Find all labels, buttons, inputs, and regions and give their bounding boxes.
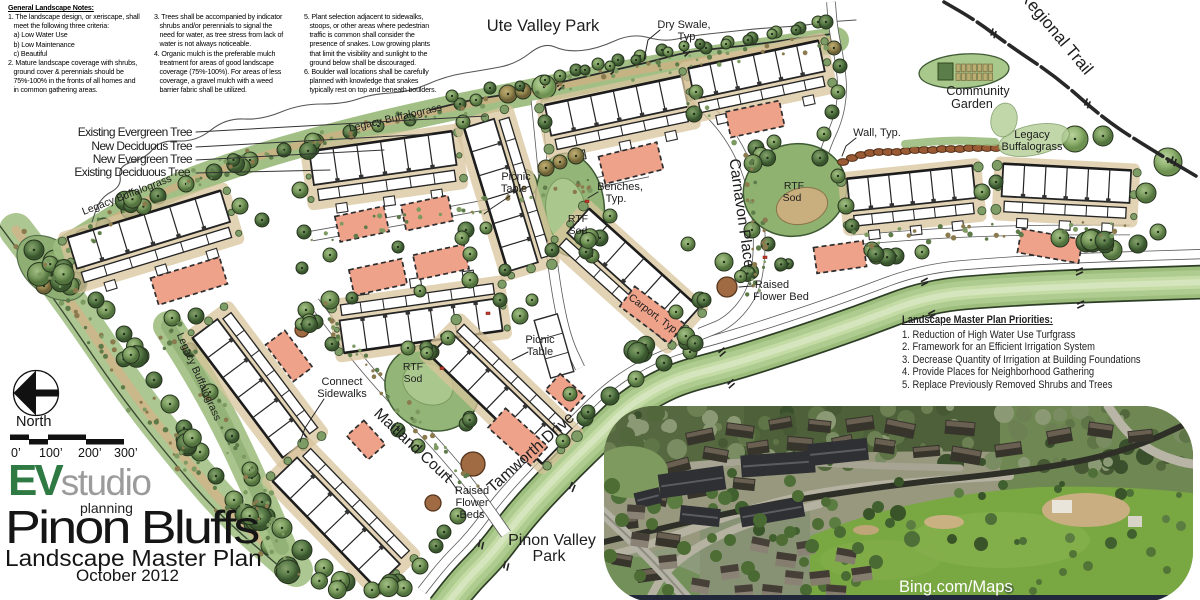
svg-text:Ute Valley Park: Ute Valley Park bbox=[487, 17, 600, 35]
svg-text:Sod: Sod bbox=[783, 192, 802, 204]
svg-text:RTF: RTF bbox=[784, 180, 804, 192]
svg-text:Legacy: Legacy bbox=[1014, 129, 1050, 141]
svg-text:Existing Evergreen Tree: Existing Evergreen Tree bbox=[78, 125, 193, 139]
svg-text:Bing.com/Maps: Bing.com/Maps bbox=[899, 578, 1013, 596]
svg-text:RTF: RTF bbox=[403, 361, 423, 373]
svg-text:Dry Swale,: Dry Swale, bbox=[657, 19, 710, 31]
svg-text:New Deciduous Tree: New Deciduous Tree bbox=[91, 139, 193, 153]
svg-text:Garden: Garden bbox=[951, 97, 993, 111]
svg-text:Connect: Connect bbox=[322, 376, 363, 388]
svg-text:Sidewalks: Sidewalks bbox=[317, 388, 367, 400]
svg-text:Typ.: Typ. bbox=[606, 193, 627, 205]
svg-text:Community: Community bbox=[946, 84, 1010, 98]
svg-text:RTF: RTF bbox=[568, 213, 588, 225]
svg-text:Sod: Sod bbox=[404, 373, 423, 385]
svg-text:Existing Deciduous Tree: Existing Deciduous Tree bbox=[74, 165, 191, 179]
svg-text:Park: Park bbox=[533, 548, 567, 565]
svg-text:Buffalograss: Buffalograss bbox=[1002, 141, 1063, 153]
svg-text:Flower Bed: Flower Bed bbox=[753, 291, 809, 303]
svg-text:Table: Table bbox=[527, 346, 553, 358]
svg-text:Sod: Sod bbox=[569, 225, 588, 237]
svg-text:Wall, Typ.: Wall, Typ. bbox=[853, 127, 901, 139]
svg-text:Beds: Beds bbox=[459, 509, 485, 521]
svg-text:Typ.: Typ. bbox=[678, 31, 699, 43]
svg-text:Picnic: Picnic bbox=[501, 171, 531, 183]
svg-text:Benches,: Benches, bbox=[597, 181, 643, 193]
svg-text:Picnic: Picnic bbox=[525, 334, 555, 346]
svg-text:New Evergreen Tree: New Evergreen Tree bbox=[93, 152, 193, 166]
svg-text:Pinon Valley: Pinon Valley bbox=[508, 532, 596, 549]
svg-text:Raised: Raised bbox=[755, 279, 789, 291]
svg-text:Raised: Raised bbox=[455, 485, 489, 497]
svg-text:Flower: Flower bbox=[455, 497, 488, 509]
svg-text:Table: Table bbox=[501, 183, 527, 195]
